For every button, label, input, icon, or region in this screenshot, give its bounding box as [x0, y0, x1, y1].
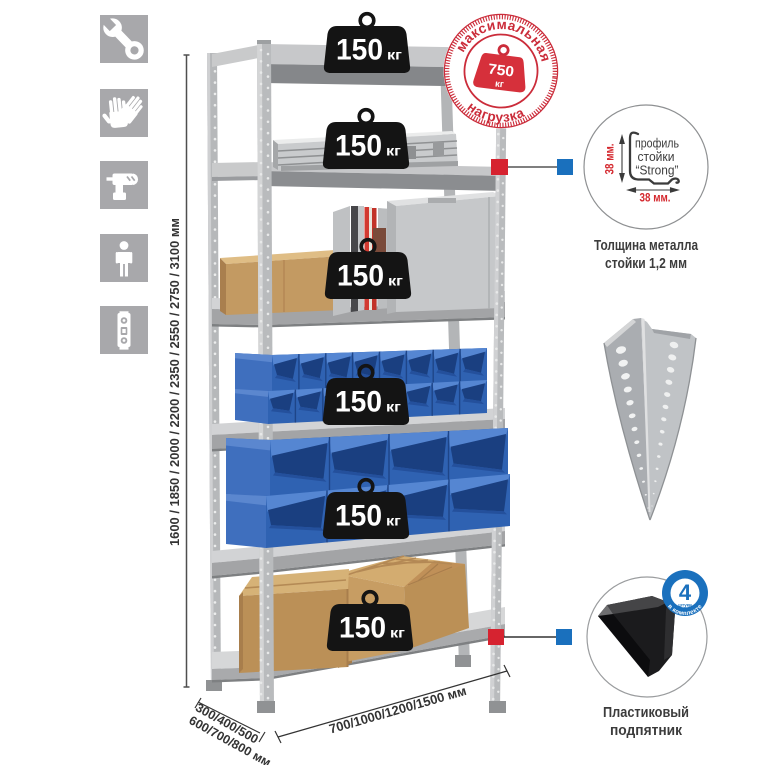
svg-text:150: 150 — [335, 500, 382, 533]
svg-text:штуки: штуки — [678, 603, 692, 608]
svg-text:кг: кг — [386, 144, 401, 159]
svg-text:Толщина металла: Толщина металла — [594, 237, 699, 254]
svg-text:750: 750 — [487, 61, 515, 80]
svg-text:“Strong”: “Strong” — [636, 164, 679, 178]
svg-text:профиль: профиль — [635, 137, 679, 151]
svg-text:кг: кг — [386, 514, 401, 529]
svg-text:150: 150 — [337, 260, 384, 293]
svg-text:150: 150 — [336, 34, 383, 67]
svg-text:150: 150 — [339, 612, 386, 645]
svg-text:кг: кг — [386, 400, 401, 415]
svg-text:стойки 1,2 мм: стойки 1,2 мм — [605, 255, 687, 272]
svg-text:150: 150 — [335, 130, 382, 163]
svg-text:кг: кг — [388, 274, 403, 289]
svg-text:150: 150 — [335, 386, 382, 419]
svg-text:38 мм.: 38 мм. — [640, 191, 671, 205]
svg-text:кг: кг — [494, 78, 504, 90]
svg-text:кг: кг — [390, 626, 405, 641]
svg-text:38 мм.: 38 мм. — [605, 144, 617, 175]
svg-text:1600 / 1850 / 2000 / 2200 / 23: 1600 / 1850 / 2000 / 2200 / 2350 / 2550 … — [167, 218, 182, 546]
svg-text:4: 4 — [679, 580, 692, 605]
svg-text:кг: кг — [387, 48, 402, 63]
svg-text:Пластиковый: Пластиковый — [603, 704, 689, 721]
svg-text:стойки: стойки — [638, 150, 675, 164]
svg-text:подпятник: подпятник — [610, 722, 682, 739]
